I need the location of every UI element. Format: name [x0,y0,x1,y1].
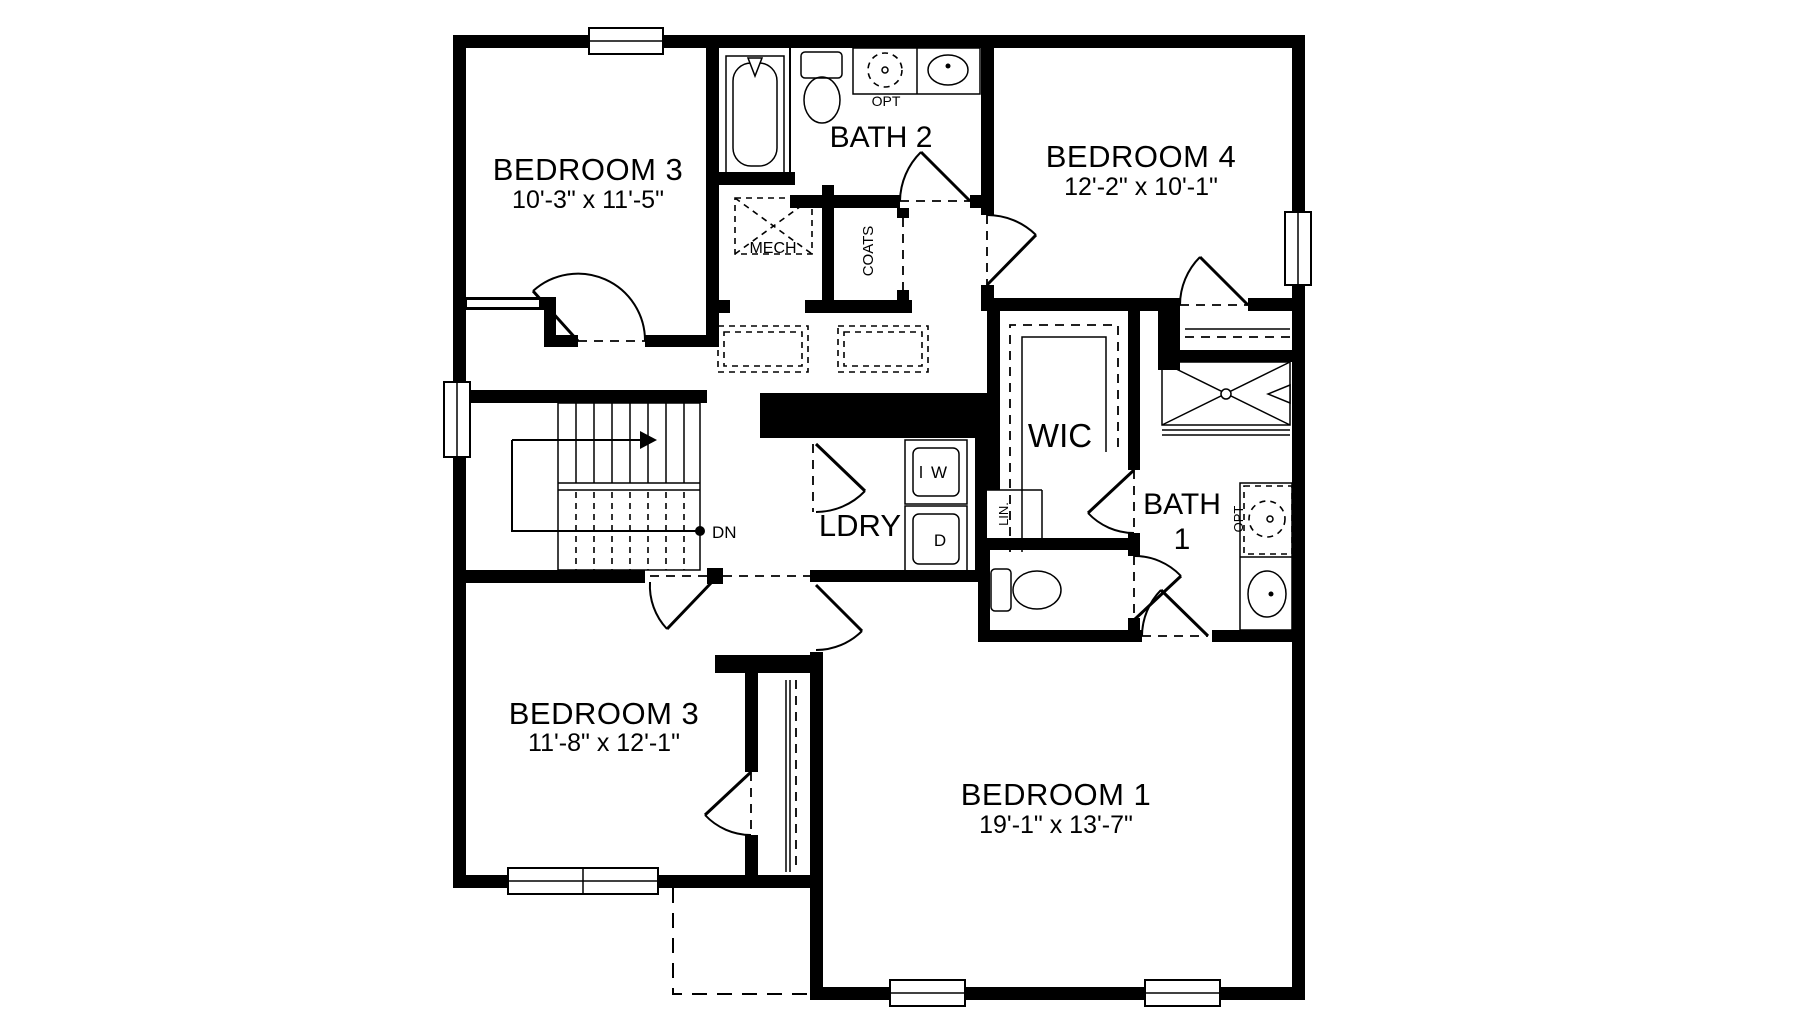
door-bedroom3-closet [705,772,751,835]
door-bedroom4-closet [1180,257,1248,305]
window-bedroom1-left [890,980,965,1006]
bath2-opt-label: OPT [872,93,901,109]
window-bedroom1-right [1145,980,1220,1006]
ldry-label: LDRY [819,508,901,543]
door-bedroom3-bottom [650,576,712,629]
door-bath2 [900,152,970,201]
door-laundry [813,444,865,512]
door-water-closet [1134,556,1181,620]
sink-bath1 [1248,571,1286,617]
door-bath1 [1142,590,1208,636]
window-bedroom3-top [589,28,663,54]
dryer-label: D [934,531,946,550]
bathtub [726,56,784,174]
bedroom3-bottom-label: BEDROOM 3 [509,696,700,731]
window-bedroom3-bottom [508,868,658,894]
bedroom4-closet-shelf [1185,329,1290,337]
toilet-bath1 [991,569,1061,611]
sink-bath2 [928,55,968,85]
door-wic [1088,470,1134,533]
staircase: DN [512,403,737,570]
optional-sink-bath1 [1244,486,1292,554]
bedroom4-dims: 12'-2" x 10'-1" [1064,173,1218,201]
coats-label: COATS [860,226,877,277]
washer-label: W [931,463,947,482]
lin-label: LIN. [996,502,1011,526]
bedroom3-top-dims: 10'-3" x 11'-5" [512,186,664,214]
attic-access [718,326,928,372]
floor-plan: DN [0,0,1811,1018]
bedroom3-closet-shelf [786,680,796,872]
mech-label: MECH [749,240,796,257]
bath1-opt-label: OPT [1231,506,1246,533]
shower [1162,362,1290,435]
window-bedroom4-right [1285,212,1311,285]
door-bedroom1 [723,576,862,650]
floor-plan-page: DN [0,0,1811,1018]
vanity-bath2 [853,48,980,94]
wic-label: WIC [1028,417,1092,454]
bedroom1-dims: 19'-1" x 13'-7" [979,811,1133,839]
bedroom3-top-label: BEDROOM 3 [493,152,684,187]
window-bedroom3-south [466,299,540,308]
bath1-label-line1: BATH [1143,488,1221,521]
door-bedroom4 [987,215,1036,285]
bath1-label-line2: 1 [1174,523,1191,556]
optional-area-outline [673,888,810,994]
toilet-bath2 [801,52,842,123]
stair-dn-label: DN [712,523,737,542]
vanity-bath1 [1240,483,1292,630]
bedroom1-label: BEDROOM 1 [961,777,1152,812]
window-stairwell-left [444,382,470,457]
bedroom3-bottom-dims: 11'-8" x 12'-1" [528,729,680,757]
bedroom4-label: BEDROOM 4 [1046,139,1237,174]
bath2-label: BATH 2 [830,121,933,154]
optional-sink-bath2 [868,53,902,87]
